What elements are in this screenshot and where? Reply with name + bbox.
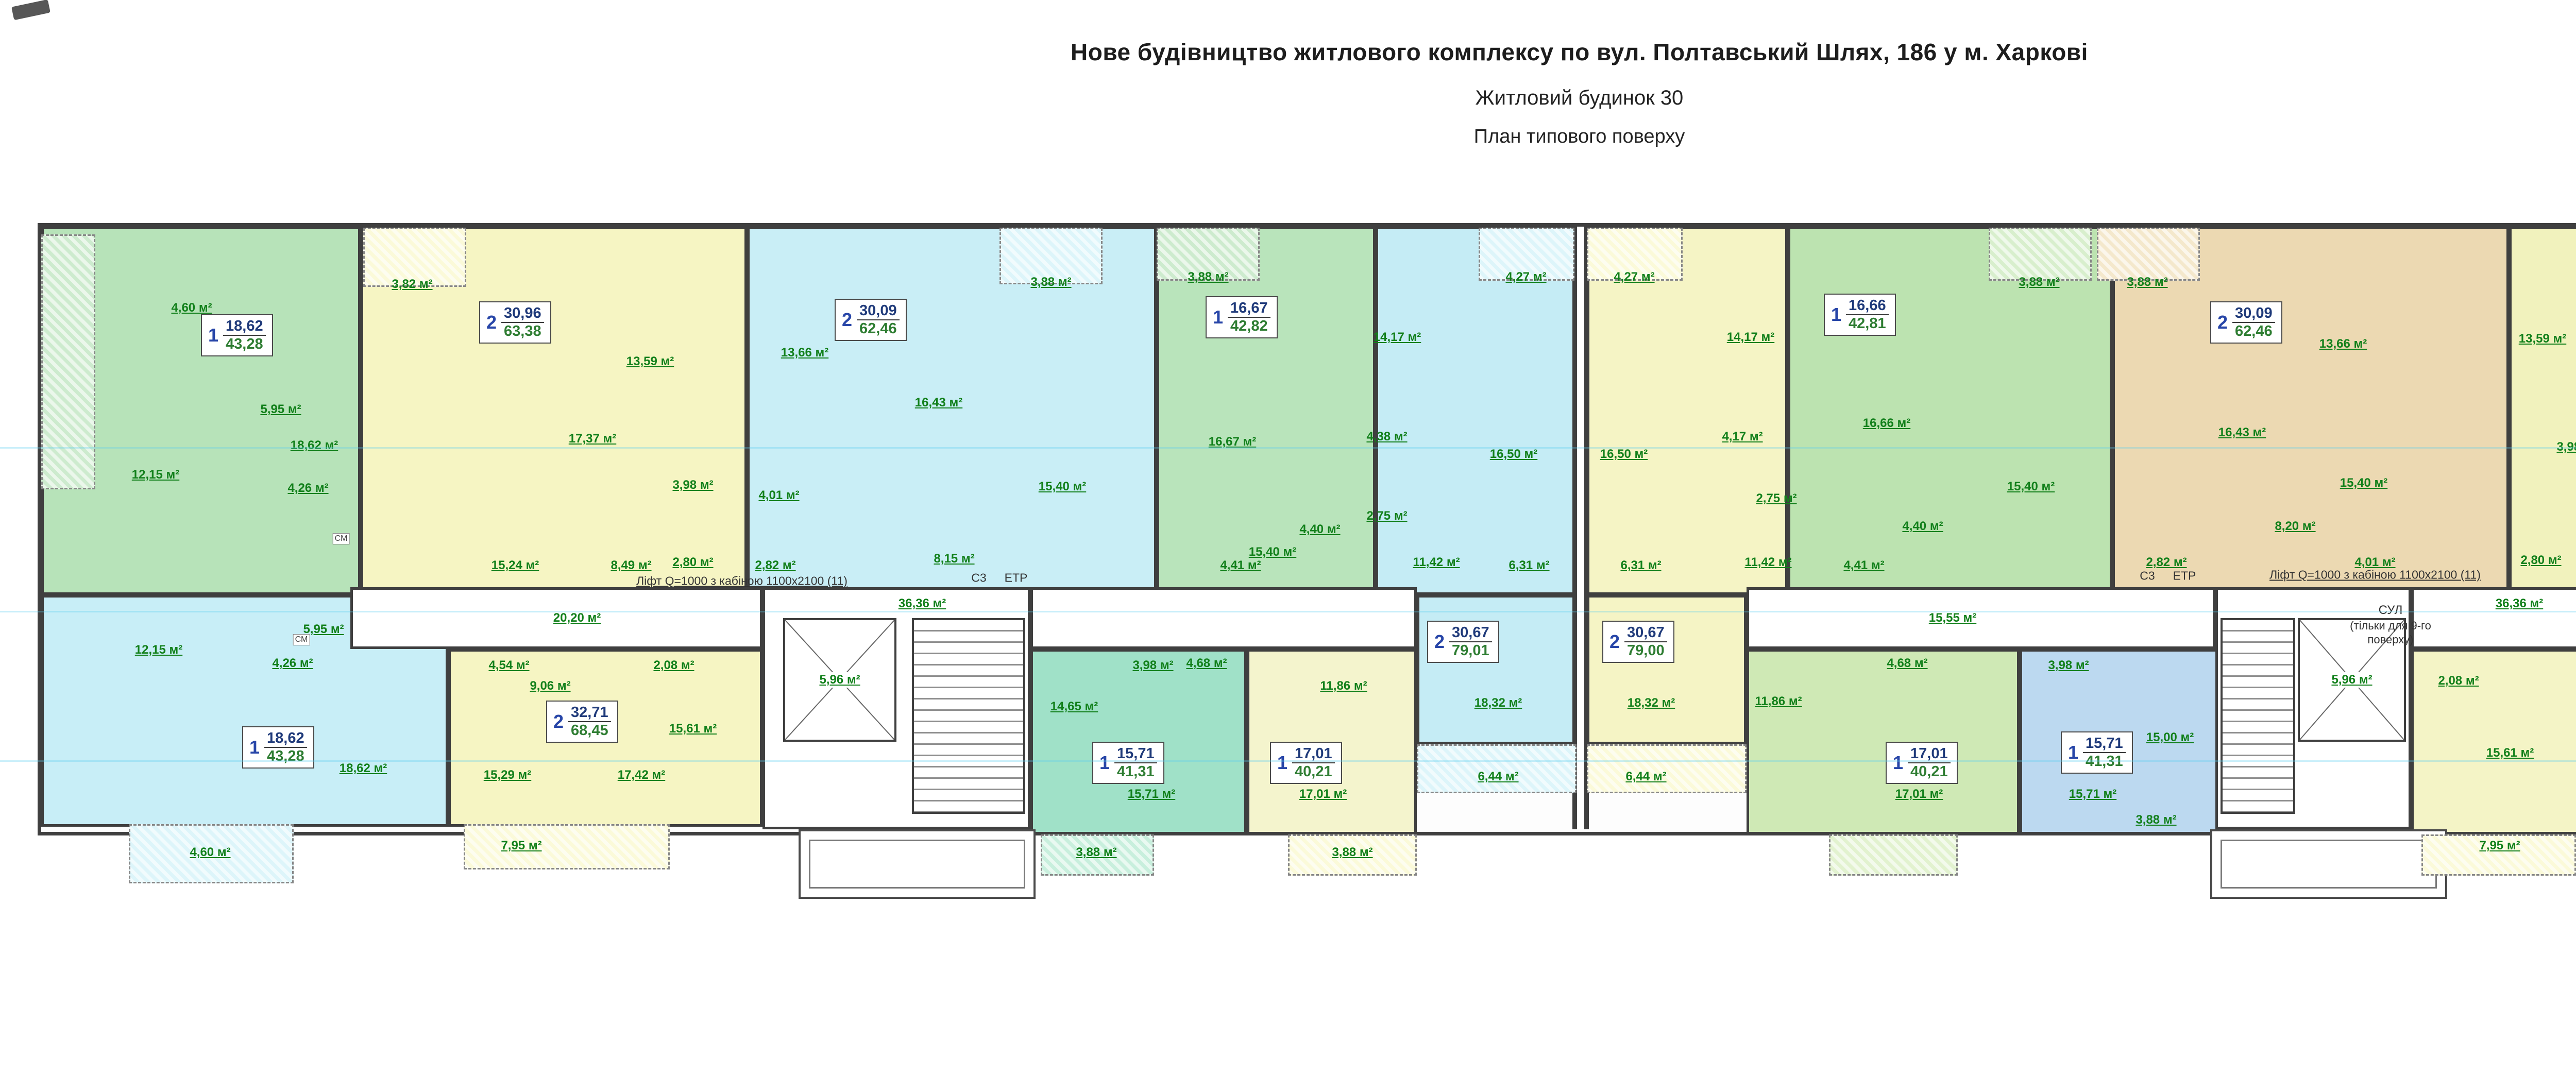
room-area: 16,43 м² bbox=[915, 396, 962, 410]
riser-etp-left: ЕТР bbox=[1005, 571, 1028, 585]
rooms-count: 1 bbox=[249, 737, 260, 758]
room-area: 17,01 м² bbox=[1299, 787, 1347, 801]
room-area: 15,29 м² bbox=[484, 768, 531, 782]
room-area: 11,42 м² bbox=[1744, 555, 1791, 570]
room-area: 3,88 м² bbox=[1332, 845, 1372, 860]
room-area: 2,08 м² bbox=[653, 658, 694, 673]
living-area: 30,67 bbox=[1624, 624, 1667, 642]
room-area: 2,80 м² bbox=[2520, 553, 2561, 568]
room-area: 9,06 м² bbox=[530, 679, 570, 693]
living-area: 30,09 bbox=[857, 302, 900, 320]
room-area: 15,61 м² bbox=[2486, 746, 2534, 760]
rooms-count: 2 bbox=[2217, 312, 2228, 333]
apartment-label: 230,9663,38 bbox=[479, 301, 551, 344]
living-area: 16,66 bbox=[1846, 297, 1889, 315]
room-area: 4,27 м² bbox=[1505, 270, 1546, 284]
total-area: 42,81 bbox=[1846, 315, 1889, 332]
living-area: 32,71 bbox=[568, 704, 611, 722]
room-area: 2,75 м² bbox=[1756, 491, 1797, 506]
apartment-12-orange bbox=[2112, 227, 2509, 595]
room-area: 4,41 м² bbox=[1220, 558, 1261, 573]
room-area: 15,40 м² bbox=[1039, 480, 1086, 494]
room-area: 8,49 м² bbox=[611, 558, 651, 573]
room-area: 13,66 м² bbox=[2319, 337, 2367, 351]
apartment-label: 117,0140,21 bbox=[1886, 742, 1958, 784]
living-area: 18,62 bbox=[264, 730, 307, 748]
scan-line bbox=[0, 447, 2576, 449]
room-area: 12,15 м² bbox=[135, 643, 182, 657]
apartment-label: 115,7141,31 bbox=[1092, 742, 1164, 784]
balcony bbox=[464, 824, 670, 869]
balcony bbox=[41, 234, 95, 489]
entrance-porch-right bbox=[2210, 829, 2447, 899]
room-area: 13,59 м² bbox=[2519, 332, 2566, 346]
rooms-count: 1 bbox=[208, 325, 218, 346]
elevator-area: 5,96 м² bbox=[817, 672, 862, 688]
room-area: 12,15 м² bbox=[132, 468, 179, 482]
riser-etp-right: ЕТР bbox=[2173, 569, 2196, 583]
room-area: 6,31 м² bbox=[1509, 558, 1549, 573]
room-area: 11,86 м² bbox=[1755, 694, 1802, 709]
room-area: 4,26 м² bbox=[272, 656, 313, 671]
apartment-label: 117,0140,21 bbox=[1270, 742, 1342, 784]
staircase-left bbox=[912, 618, 1025, 814]
room-area: 2,82 м² bbox=[755, 558, 795, 573]
living-area: 30,67 bbox=[1449, 624, 1492, 642]
room-area: 4,40 м² bbox=[1902, 519, 1943, 534]
sul-note-line2: (тільки для 9-го bbox=[2350, 619, 2431, 633]
room-area: 3,98 м² bbox=[672, 478, 713, 492]
total-area: 40,21 bbox=[1908, 763, 1951, 780]
washing-machine-label: СМ bbox=[333, 533, 350, 544]
room-area: 14,65 м² bbox=[1050, 699, 1098, 714]
room-area: 11,86 м² bbox=[1320, 679, 1367, 693]
apartment-13-yellow bbox=[2509, 227, 2576, 595]
elevator-area: 5,96 м² bbox=[2329, 672, 2374, 688]
rooms-count: 1 bbox=[1277, 752, 1287, 774]
living-area: 30,96 bbox=[501, 305, 544, 323]
apartment-label: 118,6243,28 bbox=[201, 314, 273, 356]
room-area: 16,43 м² bbox=[2218, 425, 2266, 440]
room-area: 4,38 м² bbox=[1366, 430, 1407, 444]
rooms-count: 1 bbox=[1831, 304, 1841, 326]
room-area: 3,82 м² bbox=[392, 277, 432, 292]
room-area: 18,62 м² bbox=[340, 761, 387, 776]
room-area: 3,88 м² bbox=[1076, 845, 1116, 860]
corridor-right-west bbox=[1747, 587, 2215, 649]
total-area: 63,38 bbox=[501, 323, 544, 340]
room-area: 15,40 м² bbox=[1249, 545, 1296, 559]
rooms-count: 1 bbox=[1893, 752, 1903, 774]
room-area: 4,40 м² bbox=[1299, 522, 1340, 537]
room-area: 4,68 м² bbox=[1887, 656, 1927, 671]
room-area: 3,88 м² bbox=[2136, 813, 2176, 827]
room-area: 13,59 м² bbox=[626, 354, 674, 369]
room-area: 8,20 м² bbox=[2275, 519, 2315, 534]
room-area: 15,40 м² bbox=[2007, 480, 2055, 494]
room-area: 18,32 м² bbox=[1475, 696, 1522, 710]
room-area: 17,42 м² bbox=[618, 768, 665, 782]
room-area: 6,44 м² bbox=[1625, 770, 1666, 784]
total-area: 41,31 bbox=[1114, 763, 1157, 780]
room-area: 15,00 м² bbox=[2146, 730, 2194, 745]
total-area: 42,82 bbox=[1228, 318, 1270, 335]
corridor-area: 36,36 м² bbox=[2496, 596, 2543, 611]
room-area: 2,75 м² bbox=[1366, 509, 1407, 523]
total-area: 62,46 bbox=[857, 320, 900, 337]
corridor-right-east bbox=[2411, 587, 2576, 649]
scan-line bbox=[0, 611, 2576, 612]
room-area: 7,95 м² bbox=[2479, 839, 2520, 853]
rooms-count: 1 bbox=[1213, 306, 1223, 328]
lift-note-left: Ліфт Q=1000 з кабіною 1100х2100 (11) bbox=[636, 574, 848, 588]
lift-note-right: Ліфт Q=1000 з кабіною 1100х2100 (11) bbox=[2269, 568, 2481, 582]
balcony bbox=[1989, 228, 2092, 281]
room-area: 6,44 м² bbox=[1478, 770, 1518, 784]
room-area: 4,60 м² bbox=[171, 301, 212, 315]
room-area: 4,60 м² bbox=[190, 845, 230, 860]
washing-machine-label: СМ bbox=[293, 634, 310, 645]
room-area: 3,88 м² bbox=[2019, 275, 2059, 289]
living-area: 16,67 bbox=[1228, 300, 1270, 318]
room-area: 16,50 м² bbox=[1490, 447, 1537, 462]
room-area: 14,17 м² bbox=[1374, 330, 1421, 345]
total-area: 43,28 bbox=[264, 748, 307, 765]
scan-line bbox=[0, 760, 2576, 762]
room-area: 15,24 м² bbox=[492, 558, 539, 573]
rooms-count: 2 bbox=[842, 309, 852, 331]
total-area: 79,01 bbox=[1449, 642, 1492, 659]
room-area: 4,01 м² bbox=[758, 488, 799, 503]
room-area: 13,66 м² bbox=[781, 346, 828, 360]
room-area: 17,01 м² bbox=[1895, 787, 1943, 801]
riser-c3-left: С3 bbox=[971, 571, 986, 585]
apartment-5-cyan-kitchen bbox=[1417, 595, 1577, 744]
room-area: 4,26 м² bbox=[287, 481, 328, 496]
room-area: 4,17 м² bbox=[1722, 430, 1762, 444]
apartment-label: 115,7141,31 bbox=[2061, 731, 2133, 774]
rooms-count: 2 bbox=[553, 711, 564, 732]
apartment-label: 118,6243,28 bbox=[242, 726, 314, 769]
room-area: 15,61 м² bbox=[669, 722, 717, 736]
apartment-label: 230,0962,46 bbox=[2210, 301, 2282, 344]
apartment-label: 232,7168,45 bbox=[546, 701, 618, 743]
room-area: 4,54 м² bbox=[488, 658, 529, 673]
staircase-right bbox=[2221, 618, 2295, 814]
room-area: 16,50 м² bbox=[1600, 447, 1648, 462]
balcony bbox=[1829, 834, 1958, 876]
room-area: 2,80 м² bbox=[672, 555, 713, 570]
apartment-17-yellow bbox=[2411, 649, 2576, 834]
sul-note-line1: СУЛ bbox=[2379, 603, 2403, 618]
apartment-label: 230,6779,01 bbox=[1427, 621, 1499, 663]
room-area: 8,15 м² bbox=[934, 552, 974, 566]
room-area: 2,82 м² bbox=[2146, 555, 2187, 570]
balcony bbox=[1587, 744, 1747, 793]
balcony bbox=[2097, 228, 2200, 281]
room-area: 15,71 м² bbox=[2069, 787, 2116, 801]
room-area: 2,08 м² bbox=[2438, 674, 2479, 688]
riser-c3-right: С3 bbox=[2140, 569, 2155, 583]
apartment-label: 116,6642,81 bbox=[1824, 294, 1896, 336]
room-area: 17,37 м² bbox=[569, 432, 616, 446]
room-area: 4,27 м² bbox=[1614, 270, 1654, 284]
room-area: 18,62 м² bbox=[291, 438, 338, 453]
room-area: 4,68 м² bbox=[1186, 656, 1227, 671]
plan-subtitle: План типового поверху bbox=[0, 126, 2576, 148]
rooms-count: 2 bbox=[486, 312, 497, 333]
room-area: 5,95 м² bbox=[260, 402, 301, 417]
apartment-label: 230,6779,00 bbox=[1602, 621, 1674, 663]
living-area: 15,71 bbox=[2083, 735, 2126, 753]
room-area: 18,32 м² bbox=[1628, 696, 1675, 710]
corridor-area: 20,20 м² bbox=[553, 611, 601, 625]
rooms-count: 2 bbox=[1609, 631, 1620, 653]
room-area: 3,88 м² bbox=[1030, 275, 1071, 289]
total-area: 62,46 bbox=[2232, 323, 2275, 340]
room-area: 7,95 м² bbox=[501, 839, 541, 853]
page-title: Нове будівництво житлового комплексу по … bbox=[0, 38, 2576, 66]
room-area: 3,98 м² bbox=[1132, 658, 1173, 673]
room-area: 14,17 м² bbox=[1727, 330, 1774, 345]
living-area: 18,62 bbox=[223, 318, 266, 336]
corridor-area: 15,55 м² bbox=[1929, 611, 1976, 625]
apartment-15-green bbox=[1747, 649, 2020, 834]
entrance-porch-left bbox=[799, 829, 1036, 899]
scan-artifact bbox=[11, 0, 50, 20]
expansion-joint bbox=[1572, 227, 1589, 829]
room-area: 6,31 м² bbox=[1620, 558, 1661, 573]
room-area: 3,98 м² bbox=[2048, 658, 2089, 673]
corridor-area: 36,36 м² bbox=[899, 596, 946, 611]
balcony bbox=[1417, 744, 1577, 793]
rooms-count: 1 bbox=[1099, 752, 1110, 774]
living-area: 30,09 bbox=[2232, 305, 2275, 323]
total-area: 68,45 bbox=[568, 722, 611, 739]
corridor-left-east bbox=[1030, 587, 1417, 649]
total-area: 79,00 bbox=[1624, 642, 1667, 659]
building-subtitle: Житловий будинок 30 bbox=[0, 87, 2576, 110]
room-area: 3,88 м² bbox=[1188, 270, 1228, 284]
sul-note-line3: поверху) bbox=[2367, 633, 2413, 646]
rooms-count: 2 bbox=[1434, 631, 1445, 653]
room-area: 11,42 м² bbox=[1413, 555, 1460, 570]
room-area: 4,41 м² bbox=[1843, 558, 1884, 573]
room-area: 15,40 м² bbox=[2340, 476, 2387, 490]
room-area: 15,71 м² bbox=[1128, 787, 1175, 801]
total-area: 43,28 bbox=[223, 336, 266, 353]
total-area: 40,21 bbox=[1292, 763, 1335, 780]
apartment-11-green bbox=[1788, 227, 2112, 595]
room-area: 16,66 м² bbox=[1863, 416, 1910, 431]
apartment-label: 230,0962,46 bbox=[835, 299, 907, 341]
apartment-10-yellow-kitchen bbox=[1587, 595, 1747, 744]
apartment-label: 116,6742,82 bbox=[1206, 296, 1278, 338]
room-area: 3,88 м² bbox=[2127, 275, 2167, 289]
